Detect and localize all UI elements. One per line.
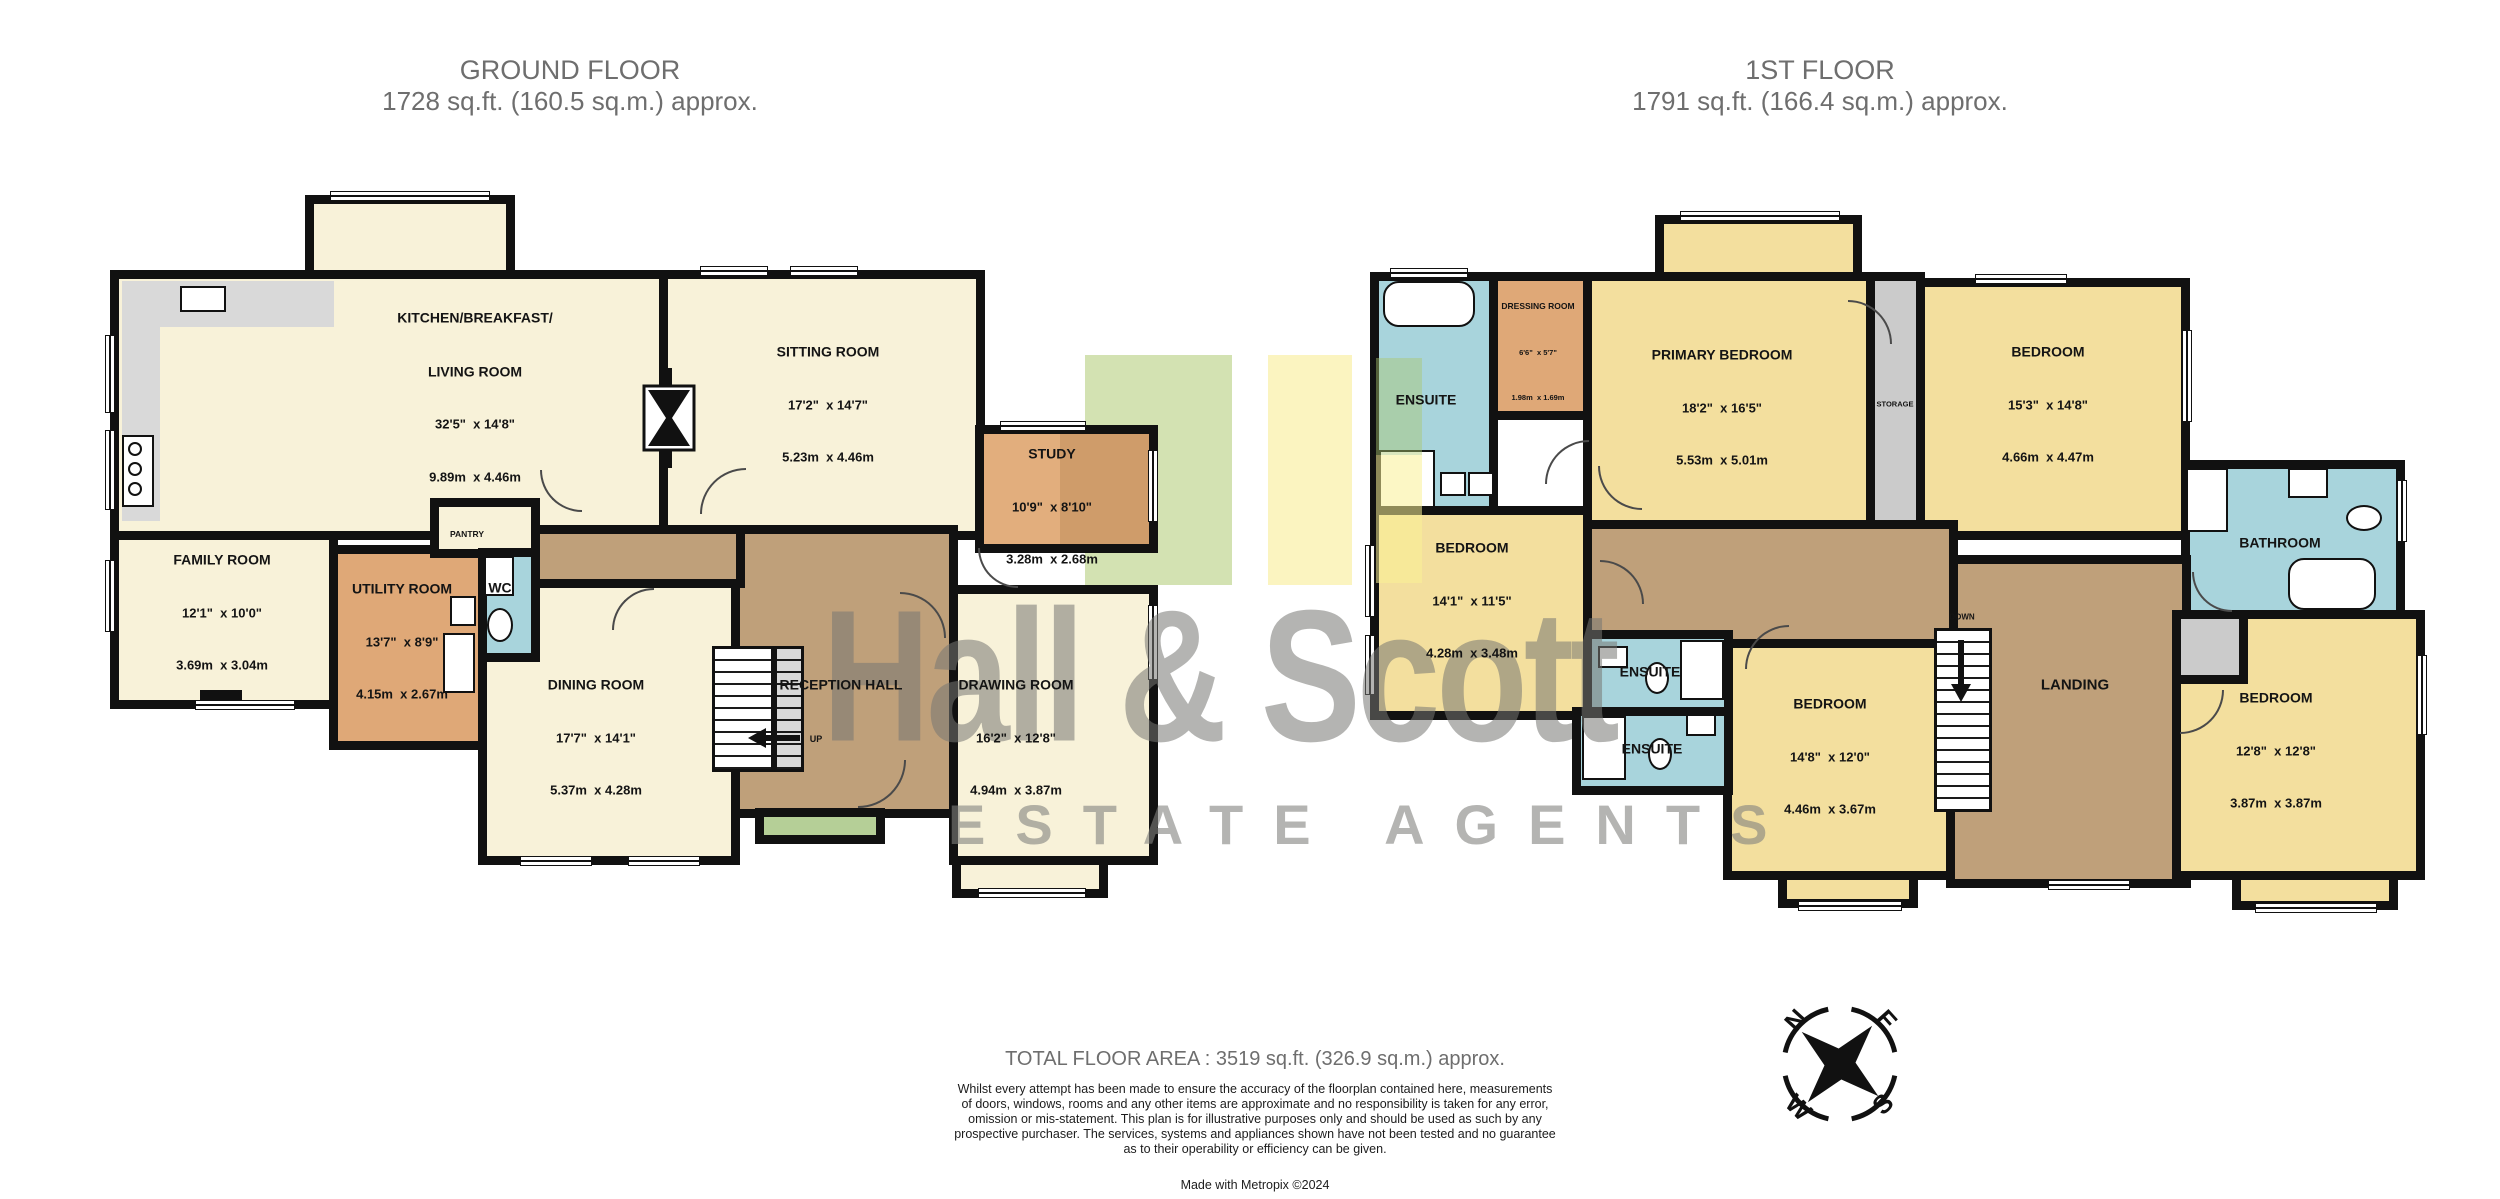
room-name: ENSUITE [1396, 391, 1457, 409]
disclaimer-line: Whilst every attempt has been made to en… [805, 1082, 1705, 1097]
room-dims-imperial: 13'7" x 8'9" [352, 634, 452, 651]
room-dims-imperial: 16'2" x 12'8" [958, 730, 1073, 747]
window [978, 888, 1086, 898]
room-name: BATHROOM [2239, 534, 2320, 552]
room-dims-imperial: 12'8" x 12'8" [2230, 743, 2322, 760]
room-label-landing: LANDING [2041, 641, 2109, 732]
up-arrow-icon [748, 728, 766, 748]
down-arrow-icon [1951, 684, 1971, 702]
room-label-study: STUDY 10'9" x 8'10" 3.28m x 2.68m [1006, 409, 1098, 604]
window [330, 191, 490, 201]
logo-patch-yellow-overlay [1376, 455, 1422, 583]
watermark-tagline: ESTATE AGENTS [948, 792, 1797, 857]
room-label-bathroom: BATHROOM [2239, 498, 2320, 588]
ensuite-bath [1383, 281, 1475, 327]
window [2048, 880, 2130, 890]
window [1148, 450, 1158, 522]
hob-ring-icon [128, 462, 142, 476]
room-label-utility: UTILITY ROOM 13'7" x 8'9" 4.15m x 2.67m [352, 544, 452, 739]
first-floor-title: 1ST FLOOR 1791 sq.ft. (166.4 sq.m.) appr… [1520, 55, 2120, 117]
room-dims-imperial: 17'7" x 14'1" [548, 730, 644, 747]
disclaimer-line: prospective purchaser. The services, sys… [805, 1127, 1705, 1142]
room-label-ensuite-primary: ENSUITE [1396, 355, 1457, 445]
hob-ring-icon [128, 442, 142, 456]
window [2182, 330, 2192, 422]
room-label-primary: PRIMARY BEDROOM 18'2" x 16'5" 5.53m x 5.… [1652, 310, 1793, 505]
room-dims-imperial: 6'6" x 5'7" [1501, 348, 1574, 358]
window [700, 266, 768, 276]
window [105, 430, 115, 510]
disclaimer: Whilst every attempt has been made to en… [805, 1082, 1705, 1157]
room-name: BEDROOM [1426, 539, 1518, 557]
room-name: BEDROOM [2002, 343, 2094, 361]
up-arrow-shaft [764, 735, 800, 741]
window [790, 266, 858, 276]
room-name: RECEPTION HALL [780, 676, 903, 694]
porch [755, 808, 885, 844]
room-dims-metric: 5.53m x 5.01m [1652, 453, 1793, 470]
room-dims-imperial: 12'1" x 10'0" [173, 605, 270, 622]
room-label-ensuite-b: ENSUITE [1622, 704, 1683, 794]
room-dims-imperial: 14'8" x 12'0" [1784, 749, 1876, 766]
room-dims-imperial: 15'3" x 14'8" [2002, 397, 2094, 414]
room-name: WC [488, 579, 511, 597]
room-dims-imperial: 10'9" x 8'10" [1006, 499, 1098, 516]
room-dims-metric: 3.28m x 2.68m [1006, 552, 1098, 569]
room-dims-metric: 3.87m x 3.87m [2230, 796, 2322, 813]
kitchen-sink [180, 286, 226, 312]
room-name: KITCHEN/BREAKFAST/ [397, 310, 553, 328]
room-dims-metric: 9.89m x 4.46m [397, 470, 553, 487]
room-name: LANDING [2041, 677, 2109, 696]
disclaimer-line: omission or mis-statement. This plan is … [805, 1112, 1705, 1127]
room-name: ENSUITE [1620, 663, 1681, 681]
room-label-storage: STORAGE [1877, 400, 1914, 409]
window [1798, 901, 1902, 911]
room-label-dressing: DRESSING ROOM 6'6" x 5'7" 1.98m x 1.69m [1501, 265, 1574, 439]
compass-east: E [1870, 1004, 1904, 1037]
room-name: DRAWING ROOM [958, 676, 1073, 694]
bathroom-toilet [2346, 505, 2382, 531]
room-name: STUDY [1006, 445, 1098, 463]
room-name: ENSUITE [1622, 740, 1683, 758]
room-label-bedroom-top-right: BEDROOM 15'3" x 14'8" 4.66m x 4.47m [2002, 307, 2094, 502]
stairs-down-label: DOWN [1949, 613, 1974, 622]
room-label-sitting: SITTING ROOM 17'2" x 14'7" 5.23m x 4.46m [777, 307, 880, 502]
room-label-bedroom-middle: BEDROOM 14'8" x 12'0" 4.46m x 3.67m [1784, 659, 1876, 854]
utility-sink [450, 596, 476, 626]
window [2255, 903, 2377, 913]
ensuite-basin [1468, 472, 1494, 496]
room-dims-metric: 5.37m x 4.28m [548, 783, 644, 800]
stairs-up-label: UP [810, 734, 823, 744]
window [2417, 655, 2427, 735]
logo-patch-yellow [1268, 355, 1352, 585]
room-label-reception: RECEPTION HALL [780, 640, 903, 730]
room-dims-imperial: 14'1" x 11'5" [1426, 593, 1518, 610]
ensuite-a-shower [1680, 640, 1724, 700]
ensuite-basin [1440, 472, 1466, 496]
window [105, 335, 115, 413]
room-label-bedroom-mid-left: BEDROOM 14'1" x 11'5" 4.28m x 3.48m [1426, 503, 1518, 698]
room-dims-metric: 1.98m x 1.69m [1501, 393, 1574, 403]
window [2397, 480, 2407, 542]
bathroom-basin [2288, 468, 2328, 498]
window [628, 856, 700, 866]
room-dims-imperial: 18'2" x 16'5" [1652, 400, 1793, 417]
disclaimer-line: as to their operability or efficiency ca… [805, 1142, 1705, 1157]
compass-north: N [1778, 1003, 1813, 1037]
down-arrow-shaft [1958, 640, 1964, 686]
room-name: FAMILY ROOM [173, 551, 270, 569]
room-dims-metric: 4.66m x 4.47m [2002, 450, 2094, 467]
room-dims-metric: 4.28m x 3.48m [1426, 646, 1518, 663]
room-dims-metric: 5.23m x 4.46m [777, 450, 880, 467]
room-label-dining: DINING ROOM 17'7" x 14'1" 5.37m x 4.28m [548, 640, 644, 835]
room-name: DINING ROOM [548, 676, 644, 694]
floorplan-canvas: GROUND FLOOR 1728 sq.ft. (160.5 sq.m.) a… [0, 0, 2500, 1199]
room-name: LIVING ROOM [397, 363, 553, 381]
ground-floor-title-line1: GROUND FLOOR [270, 55, 870, 86]
window [1390, 268, 1468, 278]
room-dims-imperial: 32'5" x 14'8" [397, 417, 553, 434]
room-name: BEDROOM [2230, 689, 2322, 707]
total-floor-area: TOTAL FLOOR AREA : 3519 sq.ft. (326.9 sq… [855, 1048, 1655, 1071]
hob-ring-icon [128, 482, 142, 496]
metropix-credit: Made with Metropix ©2024 [805, 1178, 1705, 1192]
stairs-up [712, 646, 774, 772]
ground-floor-title: GROUND FLOOR 1728 sq.ft. (160.5 sq.m.) a… [270, 55, 870, 117]
window [1680, 211, 1840, 221]
fireplace-icon [640, 368, 698, 468]
room-dims-metric: 3.69m x 3.04m [173, 658, 270, 675]
room-label-family: FAMILY ROOM 12'1" x 10'0" 3.69m x 3.04m [173, 515, 270, 710]
ensuite-b-basin [1686, 714, 1716, 736]
room-label-kitchen: KITCHEN/BREAKFAST/ LIVING ROOM 32'5" x 1… [397, 274, 553, 523]
first-floor-title-line2: 1791 sq.ft. (166.4 sq.m.) approx. [1520, 86, 2120, 117]
room-label-bedroom-bottom-right: BEDROOM 12'8" x 12'8" 3.87m x 3.87m [2230, 653, 2322, 848]
first-floor-title-line1: 1ST FLOOR [1520, 55, 2120, 86]
room-name: UTILITY ROOM [352, 580, 452, 598]
door-swing [1545, 440, 1589, 484]
room-dims-metric: 4.46m x 3.67m [1784, 802, 1876, 819]
room-label-wc: WC [488, 543, 511, 633]
room-name: SITTING ROOM [777, 343, 880, 361]
room-label-drawing: DRAWING ROOM 16'2" x 12'8" 4.94m x 3.87m [958, 640, 1073, 835]
ground-floor-title-line2: 1728 sq.ft. (160.5 sq.m.) approx. [270, 86, 870, 117]
room-label-pantry: PANTRY [450, 529, 484, 539]
window [520, 856, 592, 866]
window [1975, 274, 2067, 284]
bathroom-shower [2186, 468, 2228, 532]
room-name: BEDROOM [1784, 695, 1876, 713]
room-dims-imperial: 17'2" x 14'7" [777, 397, 880, 414]
disclaimer-line: of doors, windows, rooms and any other i… [805, 1097, 1705, 1112]
room-dims-metric: 4.15m x 2.67m [352, 687, 452, 704]
room-dims-metric: 4.94m x 3.87m [958, 783, 1073, 800]
window [105, 560, 115, 632]
compass-rose: N E S W [1770, 992, 1910, 1132]
room-name: PRIMARY BEDROOM [1652, 346, 1793, 364]
room-name: DRESSING ROOM [1501, 301, 1574, 312]
